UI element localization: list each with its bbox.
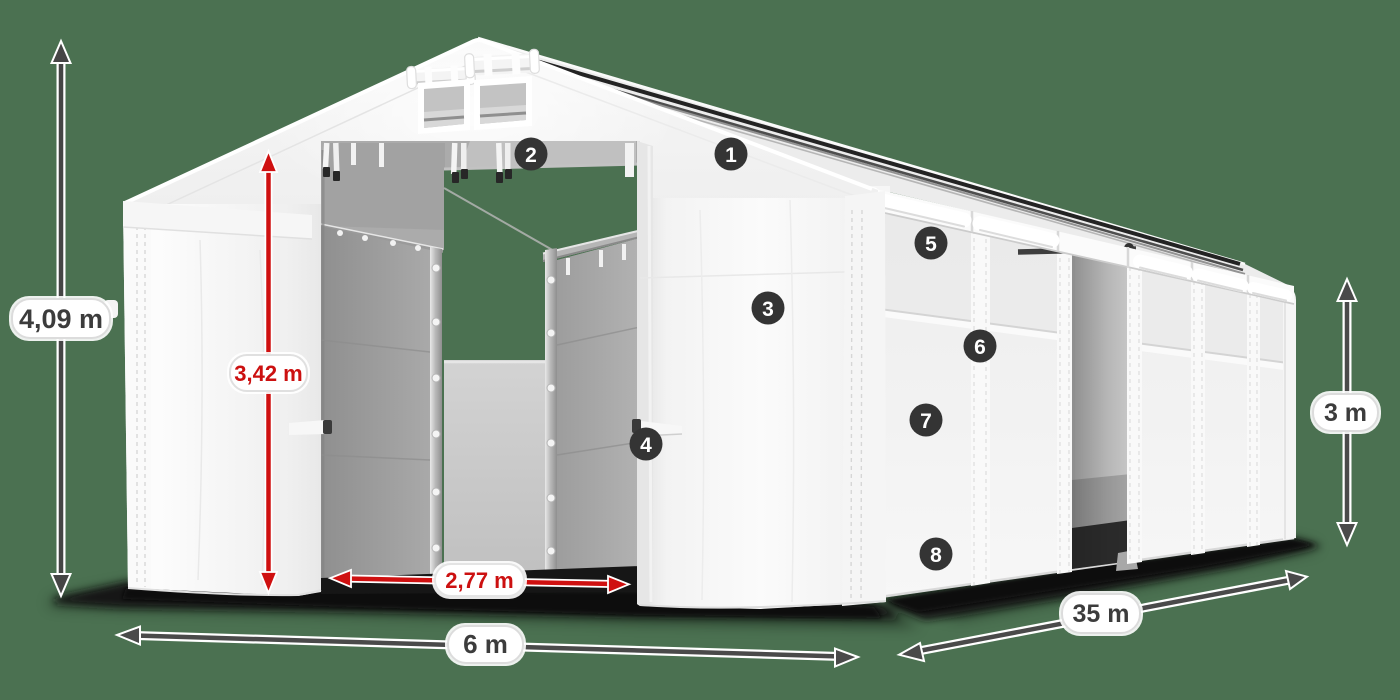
svg-text:8: 8: [930, 544, 942, 567]
svg-text:3,42 m: 3,42 m: [234, 361, 303, 386]
svg-text:2: 2: [525, 144, 537, 167]
svg-text:3 m: 3 m: [1324, 399, 1367, 427]
svg-text:1: 1: [725, 144, 737, 167]
svg-text:2,77 m: 2,77 m: [445, 568, 514, 593]
svg-text:3: 3: [762, 298, 774, 321]
svg-text:4,09 m: 4,09 m: [19, 304, 103, 334]
svg-text:6 m: 6 m: [463, 629, 508, 659]
svg-text:35 m: 35 m: [1073, 600, 1130, 628]
svg-text:6: 6: [974, 336, 986, 359]
svg-text:5: 5: [925, 233, 937, 256]
svg-text:4: 4: [640, 434, 652, 457]
svg-text:7: 7: [920, 410, 932, 433]
